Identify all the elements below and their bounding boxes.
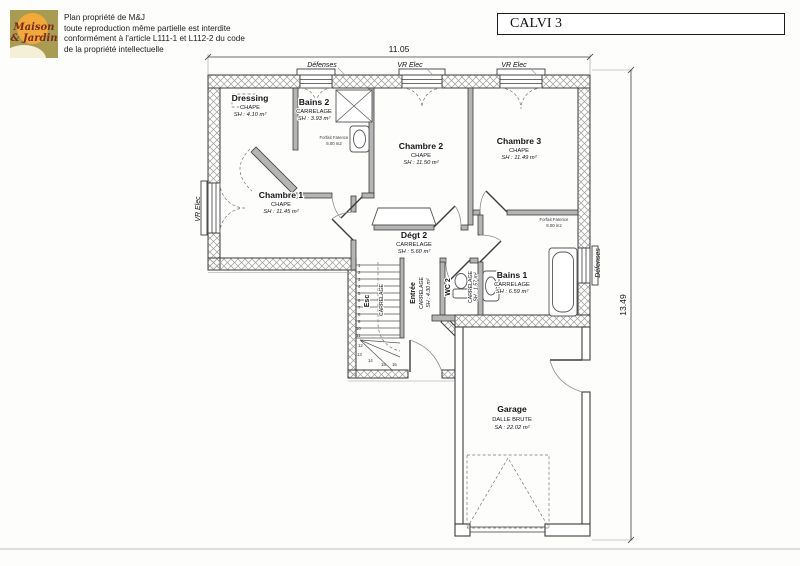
faience-note: Forfait Faïence [540,217,570,222]
room-label-bains1: Bains 1 CARRELAGE SH : 6.59 m² [494,270,530,295]
floorplan-drawing: 1 2 3 4 5 6 7 8 9 10 11 12 13 14 15 16 [0,0,800,566]
svg-text:CARRELAGE: CARRELAGE [396,242,432,248]
room-label-chambre1: Chambre 1 CHAPE SH : 11.45 m² [259,190,304,215]
faience-note-area: 8.00 m2 [546,223,562,228]
room-label-degt2: Dégt 2 CARRELAGE SH : 5.60 m² [396,230,432,255]
svg-text:SH : 6.59 m²: SH : 6.59 m² [496,289,530,295]
svg-text:Chambre 2: Chambre 2 [399,141,444,151]
svg-text:10: 10 [356,326,361,331]
window-chambre2 [402,75,442,88]
defenses-right-label: Défenses [595,248,602,278]
svg-text:SH : 4.10 m²: SH : 4.10 m² [234,112,268,118]
svg-text:Bains 2: Bains 2 [299,97,330,107]
svg-text:4: 4 [358,284,361,289]
window-sill [297,69,335,75]
dressing-door-swing [240,149,252,191]
window-chambre3 [500,75,542,88]
vr-elec-left-label: VR Elec [195,196,202,222]
window-bains1 [578,248,590,283]
room-label-garage: Garage DALLE BRUTE SA : 22.02 m² [492,404,532,431]
lower-floor-outline [208,273,455,382]
garage-door-outline [467,455,549,528]
svg-text:Dégt 2: Dégt 2 [401,230,427,240]
svg-text:8: 8 [358,312,361,317]
svg-text:SH : 11.49 m²: SH : 11.49 m² [501,155,537,161]
stair-step-numbers: 1 2 3 4 5 6 7 8 9 10 11 12 13 14 15 16 [356,263,397,367]
svg-text:Garage: Garage [497,404,527,414]
svg-text:6: 6 [358,298,361,303]
svg-text:5: 5 [358,291,361,296]
svg-text:Dressing: Dressing [232,93,269,103]
svg-text:15: 15 [381,362,386,367]
window-sill [399,69,445,75]
room-label-bains2: Bains 2 CARRELAGE SH : 3.93 m² [296,97,332,122]
svg-text:SH : 11.45 m²: SH : 11.45 m² [263,209,299,215]
svg-text:SH : 4.30 m²: SH : 4.30 m² [426,278,432,307]
vr-elec-label: VR Elec [501,62,527,69]
dim-height-label: 13.49 [618,294,628,316]
svg-text:9: 9 [358,319,361,324]
svg-text:Entrée: Entrée [410,282,417,304]
window-chambre1 [208,183,220,233]
svg-text:CHAPE: CHAPE [411,153,431,159]
svg-text:16: 16 [392,362,397,367]
svg-text:SA : 22.02 m²: SA : 22.02 m² [494,425,530,431]
window-sill [497,69,545,75]
faience-note-area: 8.00 m2 [326,141,342,146]
stair-side-wall [400,258,404,338]
svg-text:Esc: Esc [364,295,371,308]
room-label-entree: Entrée CARRELAGE SH : 4.30 m² [410,276,432,309]
svg-text:7: 7 [358,305,361,310]
svg-text:Chambre 3: Chambre 3 [497,136,542,146]
plan-sheet: Maison & Jardin Plan propriété de M&J to… [0,0,800,566]
room-label-chambre3: Chambre 3 CHAPE SH : 11.49 m² [497,136,542,161]
svg-text:14: 14 [368,358,373,363]
svg-text:1: 1 [358,263,361,268]
svg-text:CHAPE: CHAPE [240,105,260,111]
page-bottom-edge [0,548,800,550]
svg-text:13: 13 [357,352,362,357]
room-label-dressing: Dressing CHAPE SH : 4.10 m² [232,93,269,118]
room-label-chambre2: Chambre 2 CHAPE SH : 11.50 m² [399,141,444,166]
svg-text:Chambre 1: Chambre 1 [259,190,304,200]
svg-text:CARRELAGE: CARRELAGE [419,276,425,309]
staircase: 1 2 3 4 5 6 7 8 9 10 11 12 13 14 15 16 [356,262,400,370]
svg-text:WC 2: WC 2 [445,278,452,296]
svg-text:11: 11 [356,333,361,338]
svg-text:12: 12 [358,343,363,348]
defenses-top-label: Défenses [307,62,337,69]
svg-text:CHAPE: CHAPE [509,148,529,154]
svg-text:CARRELAGE: CARRELAGE [296,109,332,115]
garage-walls [455,327,590,536]
dim-width-label: 11.05 [389,44,410,54]
svg-text:3: 3 [358,277,361,282]
faience-note: Forfait Faïence [320,135,350,140]
vr-elec-label: VR Elec [397,62,423,69]
svg-text:SH : 11.50 m²: SH : 11.50 m² [403,160,439,166]
garage-door-threshold [470,527,545,532]
svg-text:CHAPE: CHAPE [271,202,291,208]
dressing-diagonal-wall [251,147,297,193]
toilet-wc2 [455,274,467,289]
svg-text:2: 2 [358,270,361,275]
svg-text:SH : 5.60 m²: SH : 5.60 m² [398,249,432,255]
svg-text:CARRELAGE: CARRELAGE [379,283,385,316]
window-bains2 [300,75,332,88]
svg-text:DALLE BRUTE: DALLE BRUTE [492,417,532,423]
svg-text:CARRELAGE: CARRELAGE [494,282,530,288]
svg-text:SH : 3.93 m²: SH : 3.93 m² [298,116,332,122]
closet-chambre2 [372,208,436,225]
svg-text:Bains 1: Bains 1 [497,270,528,280]
svg-text:SH : 1.57 m²: SH : 1.57 m² [474,272,480,301]
